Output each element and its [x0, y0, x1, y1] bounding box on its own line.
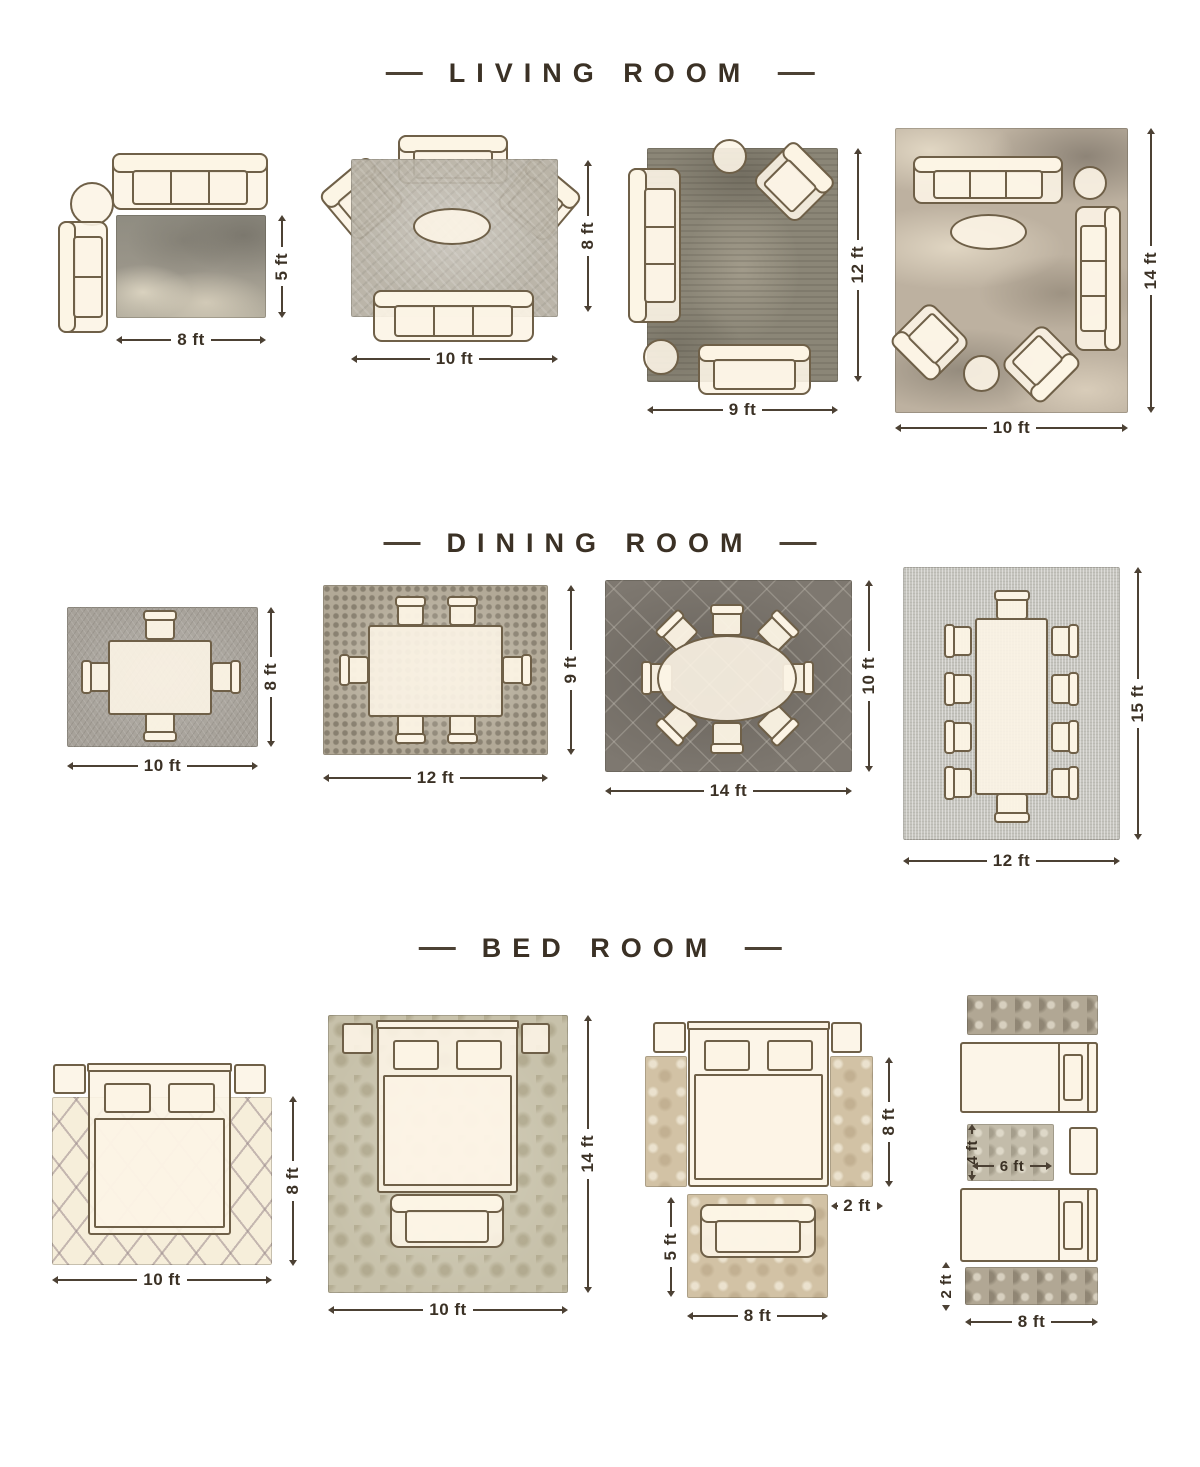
dining-table-oval: [657, 635, 797, 722]
rug-height-dimension: 8 ft: [283, 1096, 303, 1266]
pillow: [168, 1083, 215, 1113]
nightstand: [342, 1023, 373, 1054]
twin-bed: [960, 1188, 1098, 1262]
runner-rug: [965, 1267, 1098, 1305]
title-dash: [419, 947, 456, 950]
rug-width-dimension: 12 ft: [903, 851, 1120, 871]
dining-chair: [397, 714, 424, 742]
rug-width-dimension: 6 ft: [972, 1156, 1052, 1176]
rug-width-dimension: 14 ft: [605, 781, 852, 801]
rug-height-dimension: 5 ft: [661, 1197, 681, 1297]
dining-chair: [712, 606, 742, 636]
rug-width-dimension: 10 ft: [67, 756, 258, 776]
bed-duvet: [383, 1075, 512, 1186]
bed-duvet: [94, 1118, 225, 1228]
dining-chair: [145, 712, 175, 740]
twin-bed: [960, 1042, 1098, 1113]
bed-headboard: [1087, 1188, 1098, 1262]
dining-chair: [946, 768, 972, 798]
coffee-table-oval: [950, 214, 1027, 250]
dining-room-title: DINING ROOM: [384, 528, 817, 559]
rug-width-dimension: 8 ft: [687, 1306, 828, 1326]
nightstand: [53, 1064, 86, 1094]
dining-chair: [996, 793, 1028, 821]
title-dash: [780, 542, 817, 545]
rug-width-dimension: 8 ft: [116, 330, 266, 350]
title-dash: [386, 72, 423, 75]
rug-height-dimension: 12 ft: [848, 148, 868, 382]
rug-height-dimension: 8 ft: [578, 160, 598, 312]
rug-height-dimension: 10 ft: [859, 580, 879, 772]
dining-room-title-text: DINING ROOM: [447, 528, 754, 559]
dining-chair: [946, 674, 972, 704]
bed-headboard: [376, 1020, 519, 1029]
sofa-2seat: [58, 221, 108, 333]
rug-width-dimension: 10 ft: [52, 1270, 272, 1290]
nightstand: [1069, 1127, 1098, 1175]
pillow: [456, 1040, 503, 1070]
dining-chair: [145, 612, 175, 640]
dining-chair: [211, 662, 239, 692]
rug-width-dimension: 10 ft: [895, 418, 1128, 438]
runner-rug: [830, 1056, 873, 1187]
living-room-title-text: LIVING ROOM: [449, 58, 752, 89]
nightstand: [521, 1023, 550, 1054]
bed-blanket-edge: [1058, 1042, 1060, 1113]
rug-height-dimension: 9 ft: [561, 585, 581, 755]
runner-height-dimension: 2 ft: [936, 1262, 956, 1310]
rug-width-dimension: 12 ft: [323, 768, 548, 788]
runner-width-dimension: 2 ft: [831, 1196, 883, 1216]
runner-rug: [967, 995, 1098, 1035]
pillow: [1063, 1201, 1083, 1250]
nightstand: [653, 1022, 686, 1053]
dining-chair: [449, 598, 476, 626]
sofa-3seat: [913, 156, 1063, 204]
dining-chair: [1051, 674, 1077, 704]
side-table-round: [712, 139, 747, 174]
bench: [390, 1194, 504, 1248]
dining-chair: [397, 598, 424, 626]
dining-chair: [341, 656, 369, 684]
dining-table: [975, 618, 1048, 795]
dining-chair: [712, 722, 742, 752]
dining-chair: [502, 656, 530, 684]
title-dash: [744, 947, 781, 950]
title-dash: [777, 72, 814, 75]
dining-chair: [946, 722, 972, 752]
dining-chair: [996, 592, 1028, 620]
nightstand: [234, 1064, 266, 1094]
bench: [700, 1204, 816, 1258]
dining-chair: [946, 626, 972, 656]
rug-size-guide: LIVING ROOM 5 ft 8 ft 8 ft 10 ft 12 ft 9…: [0, 0, 1200, 1467]
bed-headboard: [1087, 1042, 1098, 1113]
loveseat: [698, 344, 811, 395]
dining-chair: [1051, 768, 1077, 798]
bed-duvet: [694, 1074, 823, 1180]
rug-width-dimension: 10 ft: [351, 349, 558, 369]
pillow: [704, 1040, 751, 1071]
bed-room-title: BED ROOM: [419, 933, 782, 964]
dining-chair: [1051, 722, 1077, 752]
bed-headboard: [87, 1063, 232, 1072]
rug-width-dimension: 10 ft: [328, 1300, 568, 1320]
rug-height-dimension: 15 ft: [1128, 567, 1148, 840]
rug-height-dimension: 14 ft: [1141, 128, 1161, 413]
pillow: [393, 1040, 440, 1070]
pillow: [767, 1040, 814, 1071]
runner-length-dimension: 8 ft: [879, 1057, 899, 1187]
dining-chair: [83, 662, 111, 692]
pillow: [1063, 1054, 1083, 1101]
bed-headboard: [687, 1021, 830, 1030]
side-table-round: [643, 339, 679, 375]
bed: [688, 1022, 829, 1187]
living-room-title: LIVING ROOM: [386, 58, 815, 89]
side-table-round: [963, 355, 1000, 392]
sofa-3seat: [628, 168, 681, 323]
sofa-3seat: [373, 290, 534, 342]
dining-chair: [1051, 626, 1077, 656]
title-dash: [384, 542, 421, 545]
rug-height-dimension: 14 ft: [578, 1015, 598, 1293]
bed: [377, 1021, 518, 1193]
rug: [116, 215, 266, 318]
dining-table: [108, 640, 212, 715]
side-table-round: [1073, 166, 1107, 200]
bed: [88, 1064, 231, 1235]
runner-width-dimension: 8 ft: [965, 1312, 1098, 1332]
sofa-3seat: [1075, 206, 1121, 351]
nightstand: [831, 1022, 862, 1053]
bed-room-title-text: BED ROOM: [482, 933, 719, 964]
bed-blanket-edge: [1058, 1188, 1060, 1262]
dining-table: [368, 625, 503, 717]
rug-height-dimension: 5 ft: [272, 215, 292, 318]
rug-width-dimension: 9 ft: [647, 400, 838, 420]
rug-height-dimension: 8 ft: [261, 607, 281, 747]
dining-chair: [449, 714, 476, 742]
sofa-3seat: [112, 153, 268, 210]
runner-rug: [645, 1056, 687, 1187]
coffee-table-oval: [413, 208, 491, 245]
pillow: [104, 1083, 151, 1113]
side-table-round: [70, 182, 114, 226]
